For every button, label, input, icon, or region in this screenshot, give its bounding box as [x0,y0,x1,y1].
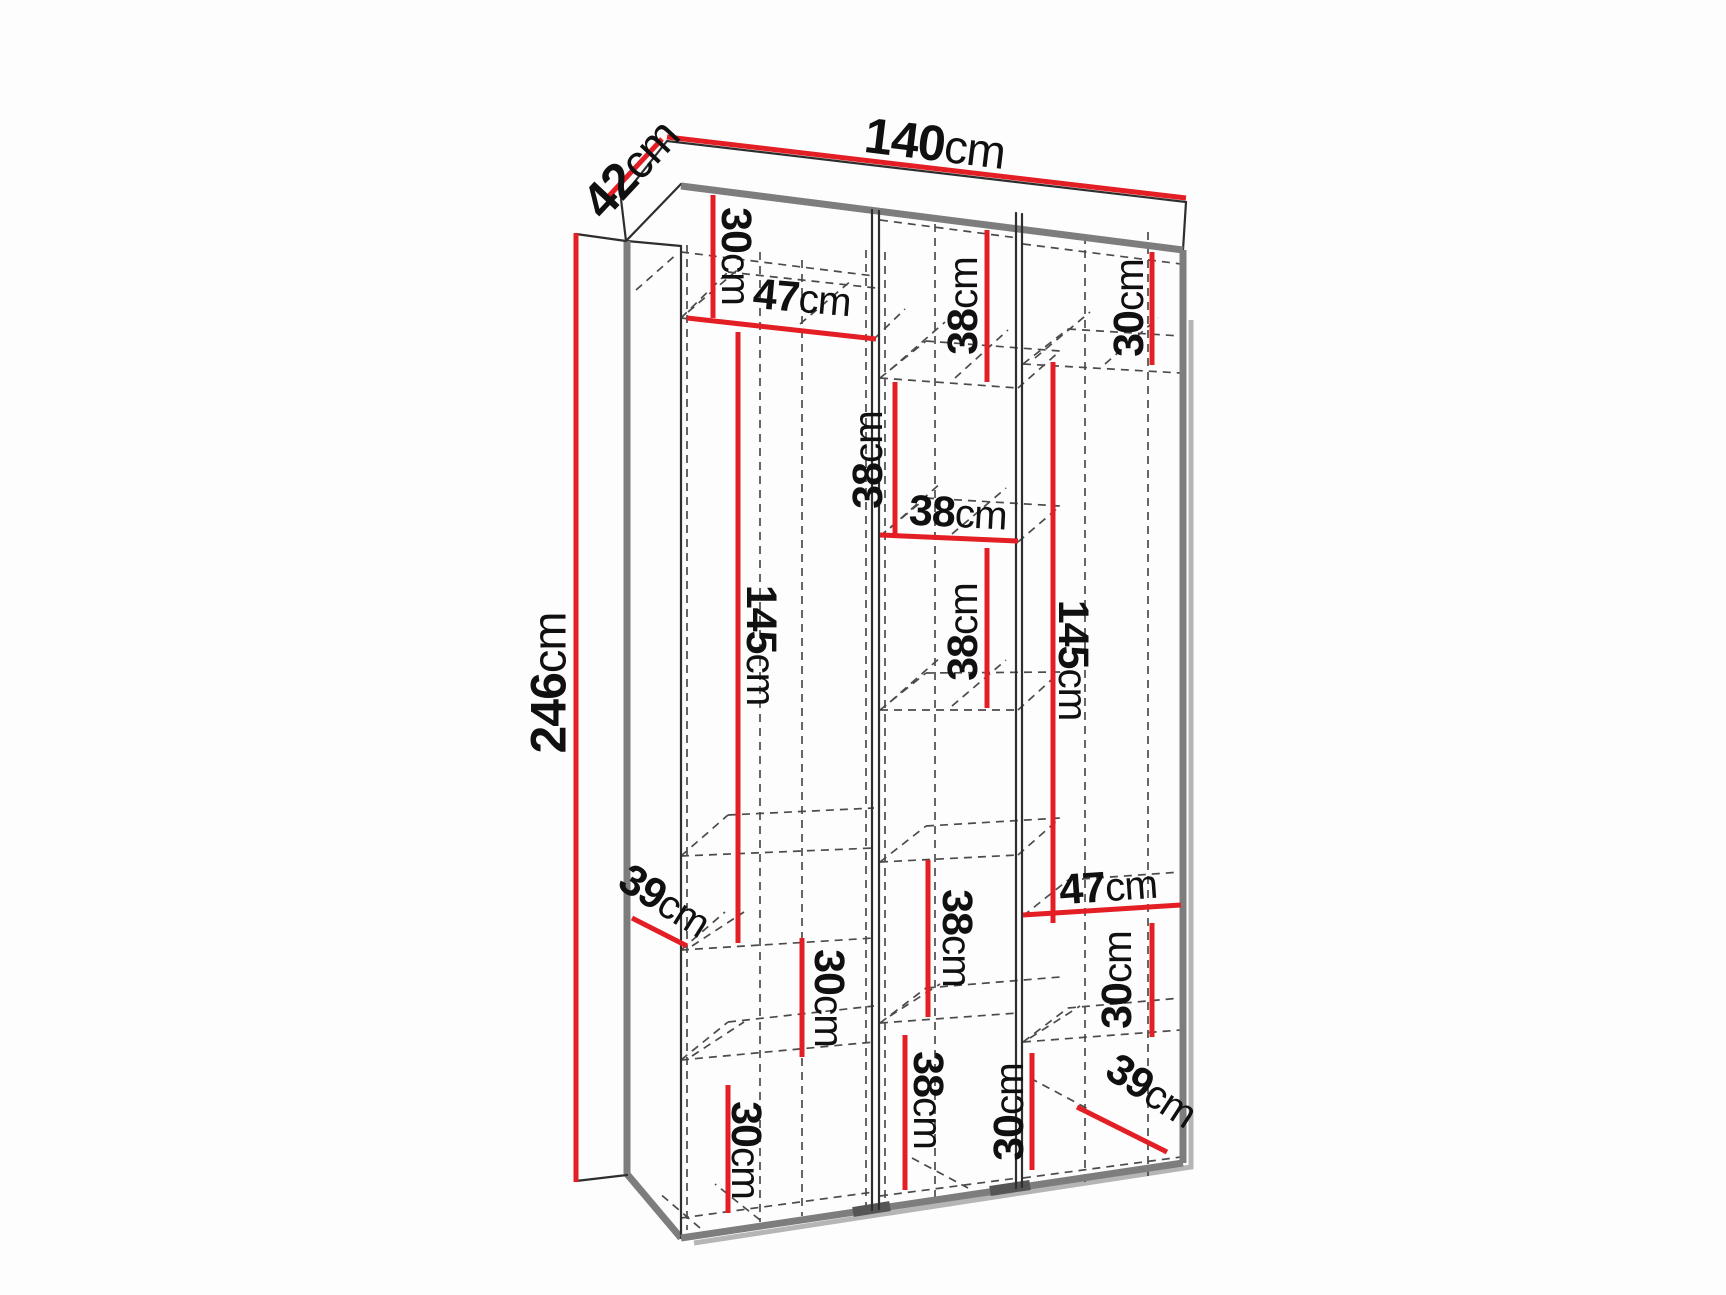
dim-label-depth-42: 42cm [571,107,690,229]
dim-label-shelf-30-top-right: 30cm [1105,259,1153,357]
dim-label-shelf-38-mid-2: 38cm [939,583,987,681]
dim-label-width-140: 140cm [862,107,1009,180]
dim-label-shelf-30-bot-left: 30cm [722,1101,770,1199]
dim-label-shelf-30-right: 30cm [1093,931,1141,1029]
dim-label-shelf-38-mid-horiz: 38cm [908,487,1008,540]
diagram-page: 42cm140cm246cm30cm47cm38cm30cm38cm38cm38… [0,0,1726,1295]
dim-label-shelf-38-mid-upper: 38cm [844,411,892,509]
side-panel [627,241,681,1238]
dim-label-shelf-38-bot-mid: 38cm [904,1051,952,1149]
dim-label-hang-145-left: 145cm [737,585,785,706]
dim-label-shelf-30-left-mid: 30cm [805,949,853,1047]
dim-label-height-246: 246cm [521,612,577,753]
partition-right [1016,213,1022,1188]
height-extension-lines [576,234,627,1181]
wardrobe-dimension-diagram: 42cm140cm246cm30cm47cm38cm30cm38cm38cm38… [0,0,1726,1295]
dim-label-shelf-38-mid-3: 38cm [933,889,981,987]
dim-label-shelf-30-bot-mid: 30cm [985,1063,1033,1161]
dim-label-shelf-47-right: 47cm [1058,860,1159,915]
dimension-labels: 42cm140cm246cm30cm47cm38cm30cm38cm38cm38… [521,107,1206,1199]
dim-label-hang-145-right: 145cm [1049,600,1097,721]
partition-left [872,210,879,1210]
dim-label-shelf-38-top-mid: 38cm [939,257,987,355]
dim-label-shelf-47-left: 47cm [751,270,853,326]
